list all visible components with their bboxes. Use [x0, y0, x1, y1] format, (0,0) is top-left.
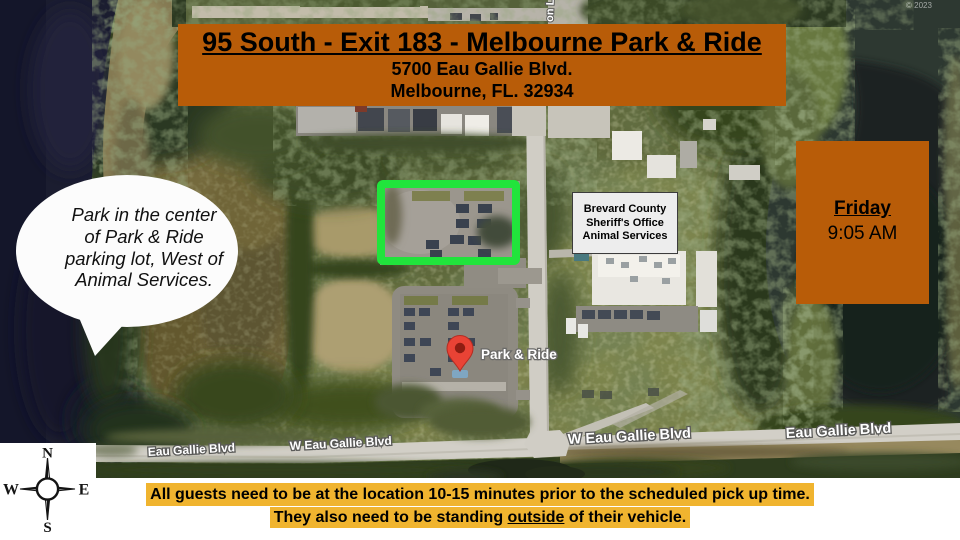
svg-text:on L: on L: [544, 0, 557, 22]
svg-text:N: N: [42, 446, 53, 462]
svg-text:© 2023: © 2023: [906, 1, 932, 10]
svg-text:Park & Ride: Park & Ride: [481, 347, 557, 362]
